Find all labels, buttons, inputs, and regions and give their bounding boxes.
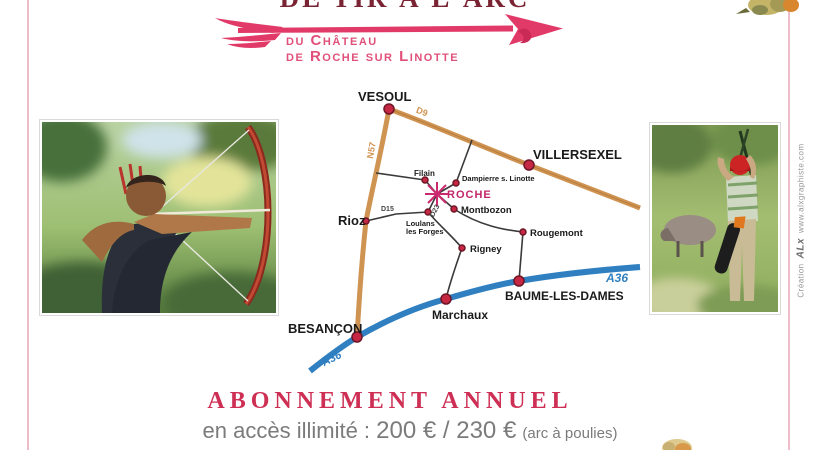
town-markers [352,104,534,342]
label-road-n57: N57 [365,141,378,159]
label-montbozon: Montbozon [461,205,512,216]
marker-rougemont [520,229,526,235]
label-marchaux: Marchaux [432,308,488,322]
pricing-prefix: en accès illimité : [203,418,371,443]
marker-rigney [459,245,465,251]
club-subtitle: du Château de Roche sur Linotte [286,33,459,65]
flyer-canvas: DE TIR À L'ARC du Château de Roche sur L… [0,0,820,450]
marker-montbozon [451,206,457,212]
label-rioz: Rioz [338,213,366,228]
label-loulans-2: les Forges [406,227,444,236]
roche-star-icon [425,182,449,206]
pricing-price: 200 € / 230 € [376,417,516,444]
marker-baume [514,276,524,286]
credit-prefix: Création [797,263,806,297]
marker-vesoul [384,104,394,114]
access-map: VESOUL VILLERSEXEL Rioz BESANÇON Marchau… [278,82,650,380]
label-roche: ROCHE [447,189,492,201]
pricing-note: (arc à poulies) [522,425,617,442]
label-a36-right: A36 [605,271,628,285]
right-border-rule [788,0,790,450]
map-secondary-roads [366,140,523,299]
label-vesoul: VESOUL [358,89,412,104]
label-baume: BAUME-LES-DAMES [505,289,624,303]
map-labels: VESOUL VILLERSEXEL Rioz BESANÇON Marchau… [288,89,628,369]
subtitle-line2: de Roche sur Linotte [286,49,459,65]
label-road-d9: D9 [415,105,429,118]
label-besancon: BESANÇON [288,321,362,336]
label-rigney: Rigney [470,244,502,255]
credit-site: www.alxgraphiste.com [797,143,806,233]
label-a36-left: A36 [319,349,344,369]
subtitle-line1: du Château [286,33,459,49]
label-filain: Filain [414,169,435,178]
linnet-bird-top-icon [736,0,802,18]
alx-logo: ALx [796,238,807,258]
label-villersexel: VILLERSEXEL [533,147,622,162]
label-road-d15: D15 [381,206,394,213]
photo-adult-archer [40,120,278,315]
credit-line: Création ALx www.alxgraphiste.com [795,111,808,331]
pricing-heading: ABONNEMENT ANNUEL [0,388,780,415]
marker-dampierre [453,180,459,186]
label-dampierre: Dampierre s. Linotte [462,174,535,183]
marker-marchaux [441,294,451,304]
left-border-rule [27,0,29,450]
label-rougemont: Rougemont [530,228,584,239]
linnet-bird-bottom-icon [656,437,698,450]
photo-child-archer [650,123,780,314]
